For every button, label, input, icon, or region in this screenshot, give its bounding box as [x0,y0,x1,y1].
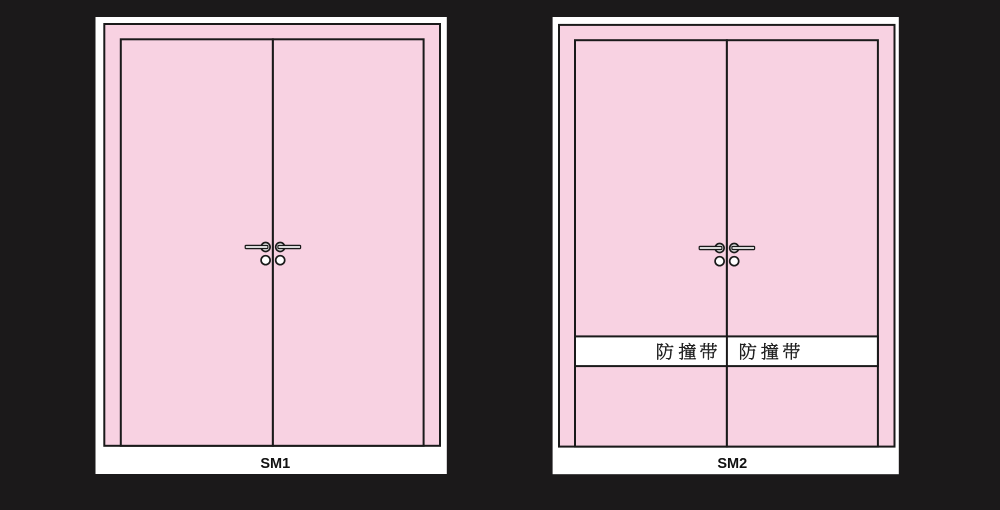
svg-text:SM2: SM2 [717,456,747,472]
svg-text:SM1: SM1 [260,456,290,472]
